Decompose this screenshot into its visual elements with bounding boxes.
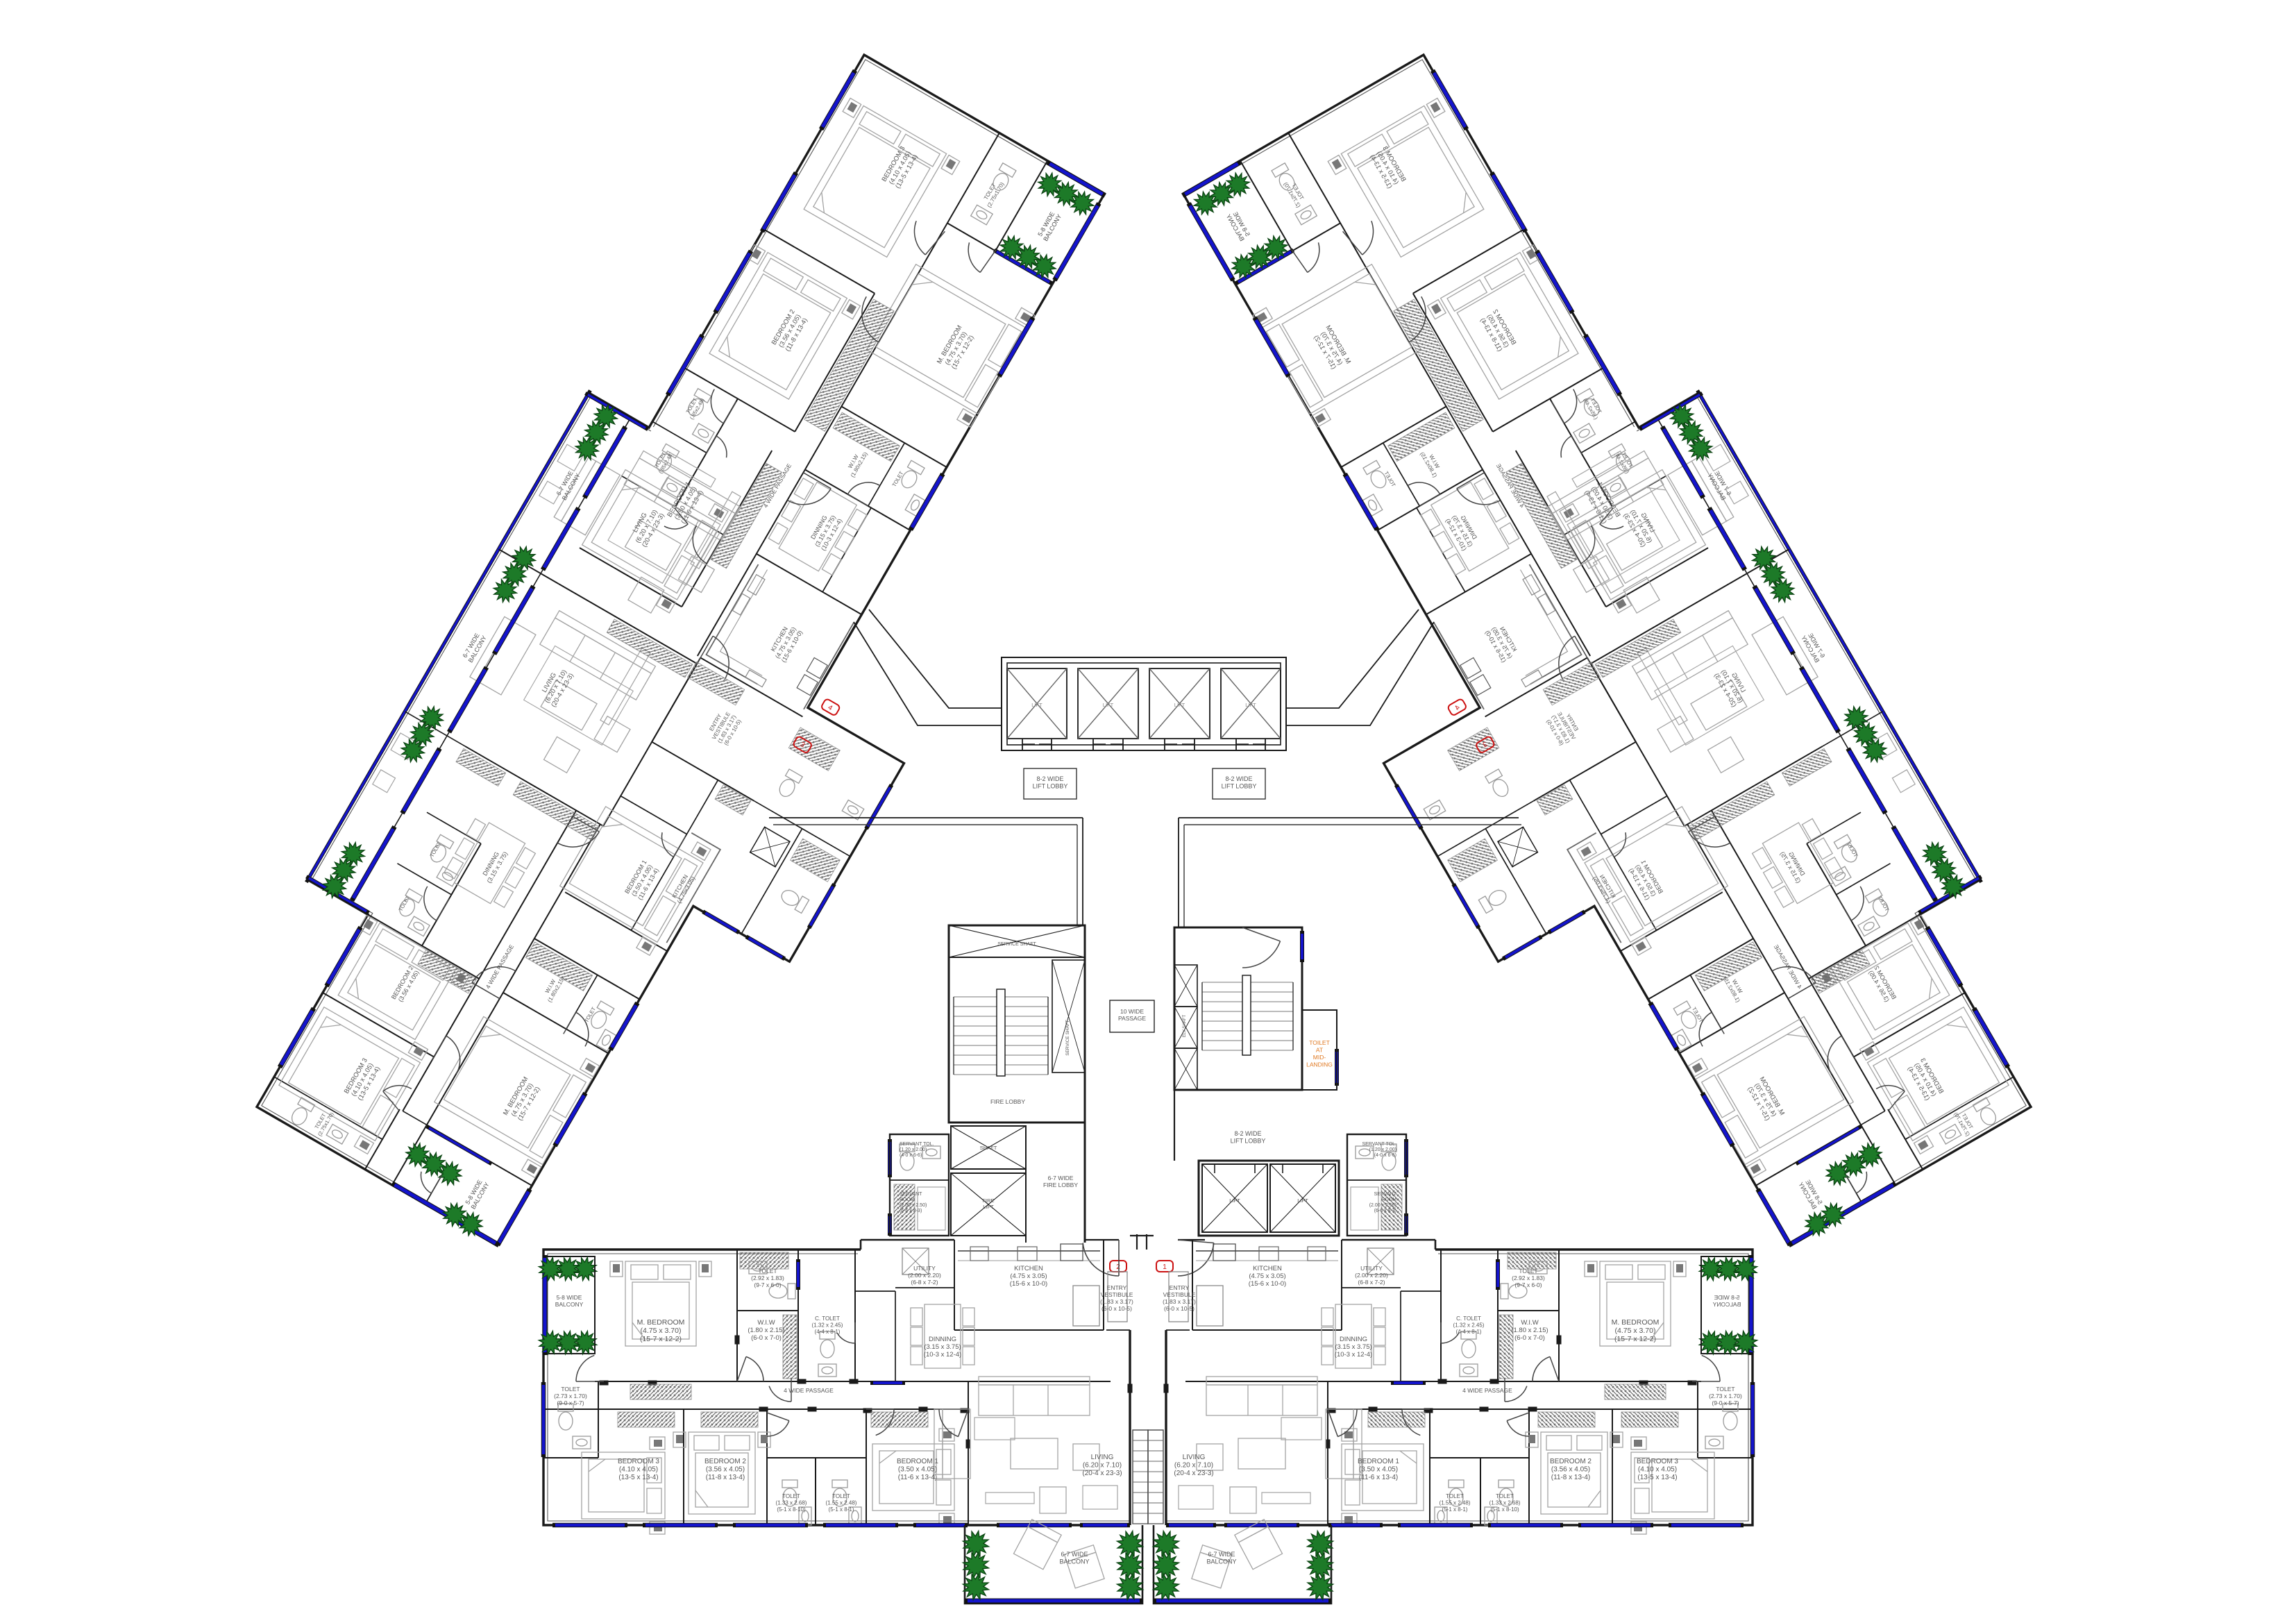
svg-text:DINNING(3.15 x 3.75)(10-3 x 12: DINNING(3.15 x 3.75)(10-3 x 12-4) (1335, 1336, 1372, 1359)
svg-text:8-2 WIDELIFT LOBBY: 8-2 WIDELIFT LOBBY (1033, 775, 1068, 790)
svg-text:1: 1 (1163, 1263, 1167, 1271)
svg-text:BEDROOM 3(4.10 x 4.05)(13-5 x: BEDROOM 3(4.10 x 4.05)(13-5 x 13-4) (618, 1458, 659, 1481)
svg-text:4 WIDE PASSAGE: 4 WIDE PASSAGE (1462, 1387, 1512, 1394)
svg-text:8-2 WIDELIFT LOBBY: 8-2 WIDELIFT LOBBY (1231, 1130, 1266, 1145)
svg-text:BEDROOM 1(3.50 x 4.05)(11-6 x: BEDROOM 1(3.50 x 4.05)(11-6 x 13-4) (1358, 1458, 1399, 1481)
svg-text:BEDROOM 1(3.50 x 4.05)(11-6 x: BEDROOM 1(3.50 x 4.05)(11-6 x 13-4) (897, 1458, 938, 1481)
svg-text:FIRELIFT: FIRELIFT (982, 1197, 994, 1210)
svg-text:LIFT: LIFT (1297, 1197, 1308, 1204)
svg-text:LIFT: LIFT (1245, 702, 1256, 708)
svg-text:KITCHEN(4.75 x 3.05)(15-6 x 10: KITCHEN(4.75 x 3.05)(15-6 x 10-0) (1010, 1265, 1047, 1288)
svg-text:BEDROOM 2(3.56 x 4.05)(11-8 x: BEDROOM 2(3.56 x 4.05)(11-8 x 13-4) (704, 1458, 746, 1481)
svg-text:LIFT: LIFT (1103, 702, 1114, 708)
svg-text:8-2 WIDELIFT LOBBY: 8-2 WIDELIFT LOBBY (1222, 775, 1257, 790)
svg-text:M. BEDROOM(4.75 x 3.70)(15-7 x: M. BEDROOM(4.75 x 3.70)(15-7 x 12-2) (637, 1318, 685, 1343)
svg-text:LIFT: LIFT (1229, 1197, 1240, 1204)
svg-text:SERVICE SHAFT: SERVICE SHAFT (997, 942, 1036, 947)
svg-text:SHAFT: SHAFT (980, 1145, 997, 1151)
svg-text:C. TOLET(1.32 x 2.45)(4-4 x 8-: C. TOLET(1.32 x 2.45)(4-4 x 8-1) (1453, 1315, 1485, 1335)
svg-text:KITCHEN(4.75 x 3.05)(15-6 x 10: KITCHEN(4.75 x 3.05)(15-6 x 10-0) (1249, 1265, 1286, 1288)
svg-text:10 WIDEPASSAGE: 10 WIDEPASSAGE (1118, 1008, 1146, 1022)
svg-text:BEDROOM 3(4.10 x 4.05)(13-5 x: BEDROOM 3(4.10 x 4.05)(13-5 x 13-4) (1637, 1458, 1678, 1481)
svg-text:C. TOLET(1.32 x 2.45)(4-4 x 8-: C. TOLET(1.32 x 2.45)(4-4 x 8-1) (812, 1315, 843, 1335)
svg-text:4 WIDE PASSAGE: 4 WIDE PASSAGE (784, 1387, 834, 1394)
svg-text:LIFT: LIFT (1031, 702, 1043, 708)
svg-text:M. BEDROOM(4.75 x 3.70)(15-7 x: M. BEDROOM(4.75 x 3.70)(15-7 x 12-2) (1612, 1318, 1660, 1343)
svg-text:6-7 WIDEFIRE LOBBY: 6-7 WIDEFIRE LOBBY (1043, 1175, 1078, 1188)
svg-text:DINNING(3.15 x 3.75)(10-3 x 12: DINNING(3.15 x 3.75)(10-3 x 12-4) (924, 1336, 961, 1359)
svg-text:LIFT: LIFT (1174, 702, 1185, 708)
svg-text:FIRE LOBBY: FIRE LOBBY (990, 1098, 1025, 1105)
svg-text:ELV SHAFT: ELV SHAFT (1183, 1015, 1187, 1038)
svg-text:BEDROOM 2(3.56 x 4.05)(11-8 x: BEDROOM 2(3.56 x 4.05)(11-8 x 13-4) (1550, 1458, 1592, 1481)
svg-text:6-7 WIDEBALCONY: 6-7 WIDEBALCONY (1059, 1551, 1089, 1565)
svg-text:6-7 WIDEBALCONY: 6-7 WIDEBALCONY (1206, 1551, 1236, 1565)
svg-text:SERVICE SHAFT: SERVICE SHAFT (1065, 1020, 1070, 1056)
